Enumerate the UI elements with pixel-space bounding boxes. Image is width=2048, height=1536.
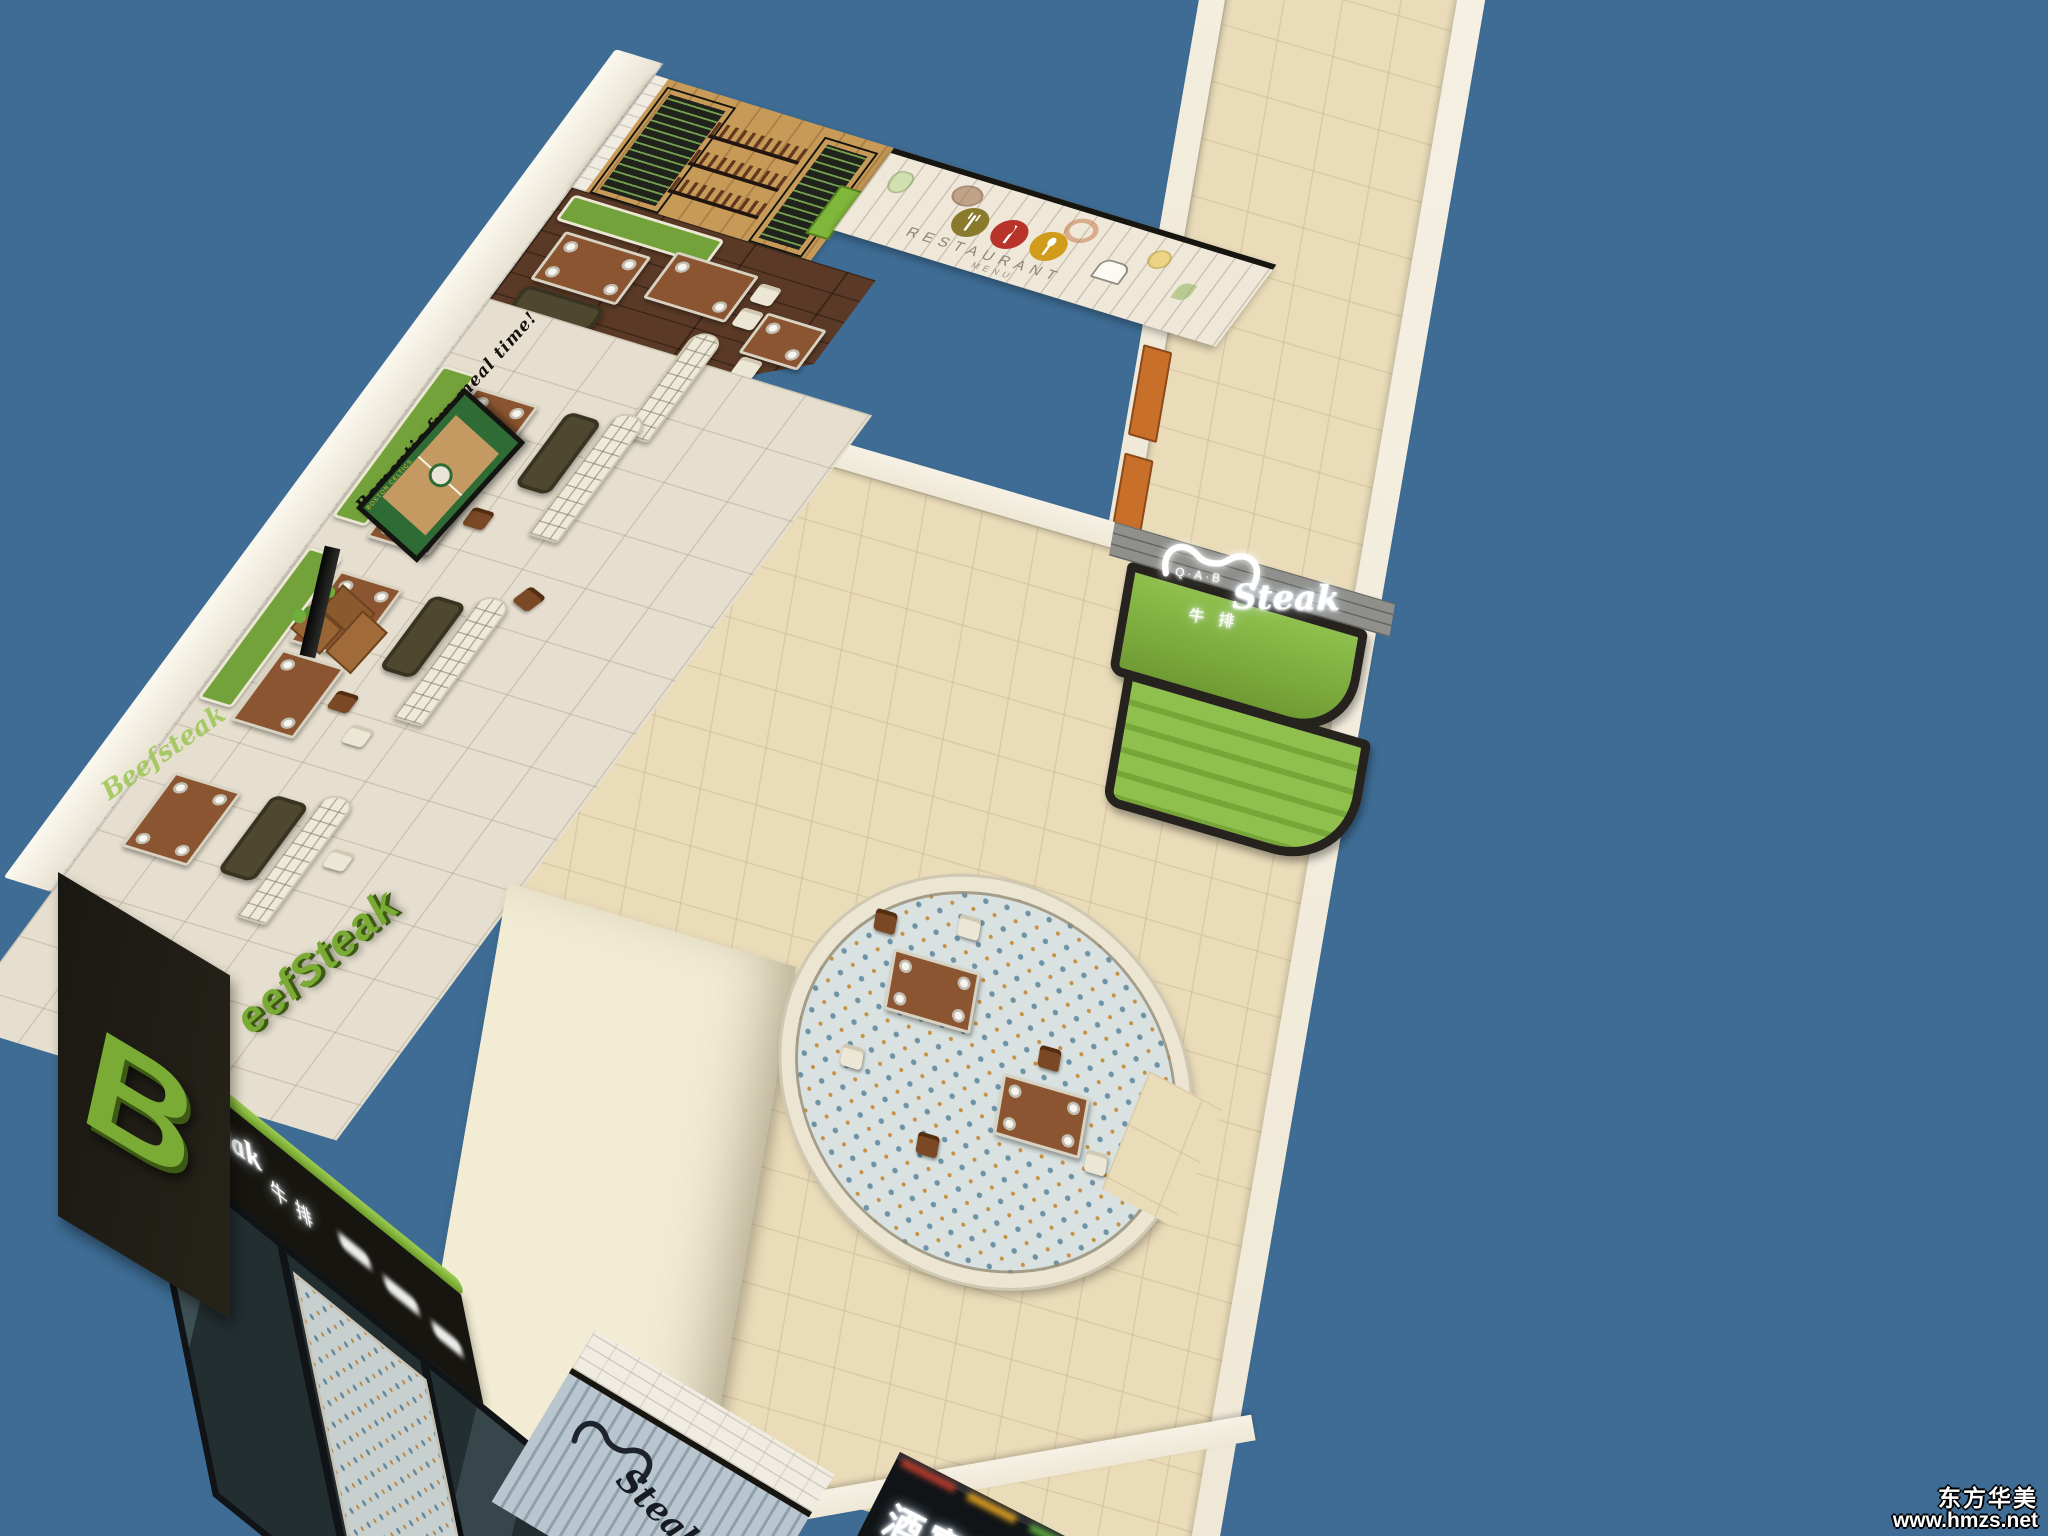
watermark: 东方华美 www.hmzs.net (1893, 1486, 2038, 1532)
watermark-company: 东方华美 (1893, 1486, 2038, 1510)
watermark-website: www.hmzs.net (1893, 1510, 2038, 1532)
doodle-chef-hat (1090, 257, 1133, 285)
storefront-chinese: 牛排 (267, 1170, 323, 1242)
scene-3d-restaurant-render: RESTAURANT MENU (0, 0, 2048, 1536)
brand-letter-b: B (84, 984, 192, 1222)
doodle-herb (1170, 281, 1197, 302)
doodle-drink (882, 169, 918, 196)
side-sign-script: Steak (608, 1460, 712, 1536)
door-handle (453, 1511, 477, 1536)
doodle-lemon (1142, 248, 1176, 272)
